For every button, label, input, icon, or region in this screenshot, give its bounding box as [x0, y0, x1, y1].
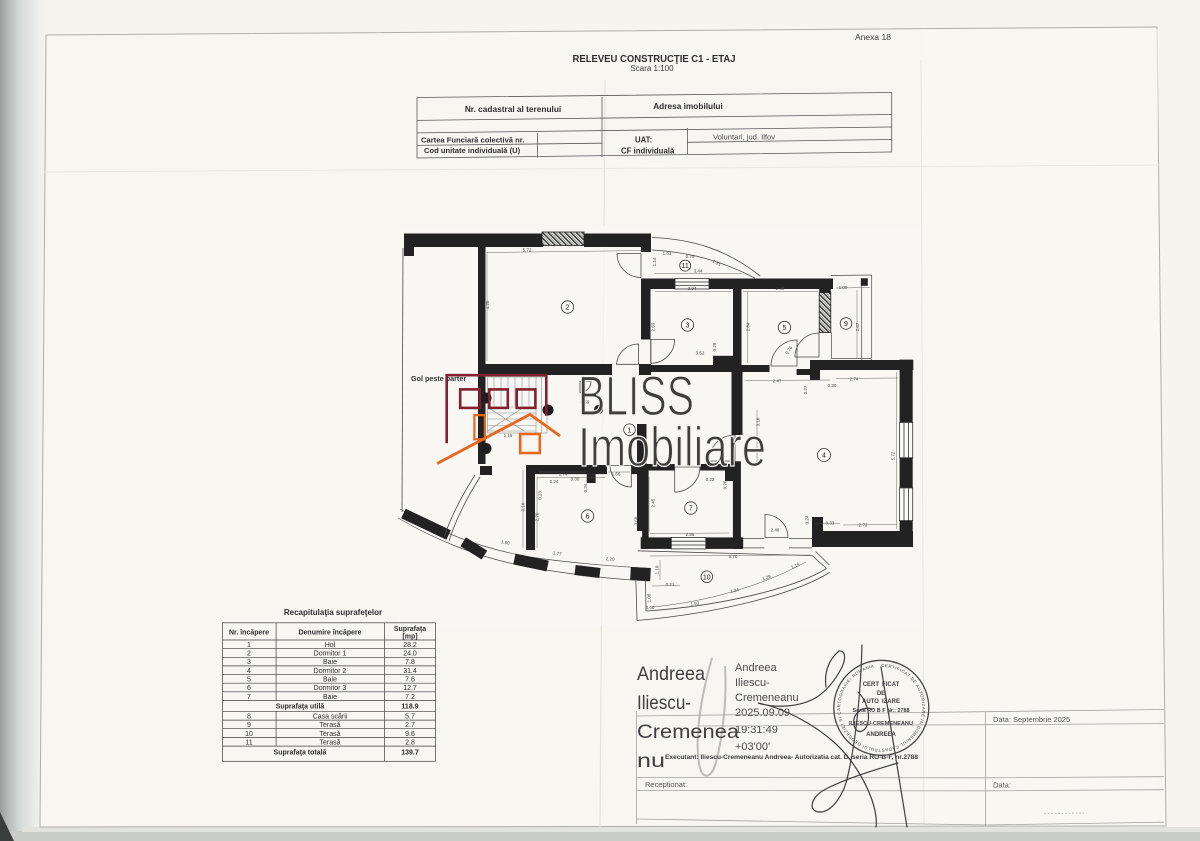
svg-text:Terasă: Terasă	[319, 731, 340, 738]
svg-text:AUTOIZARE: AUTOIZARE	[862, 699, 900, 705]
svg-text:2.69: 2.69	[776, 286, 785, 291]
svg-text:0.24: 0.24	[550, 479, 559, 484]
svg-text:3.44: 3.44	[694, 269, 703, 274]
svg-text:6: 6	[247, 685, 251, 692]
svg-text:2: 2	[247, 651, 251, 658]
svg-text:5: 5	[247, 677, 251, 684]
svg-text:0.27: 0.27	[803, 385, 808, 394]
svg-text:ILIESCU-CREMENEANU: ILIESCU-CREMENEANU	[849, 721, 913, 727]
svg-text:Iliescu-: Iliescu-	[637, 692, 691, 714]
svg-text:0.24: 0.24	[805, 515, 810, 524]
svg-text:4: 4	[247, 668, 251, 675]
svg-text:Seria RO B F Nr.: 2788: Seria RO B F Nr.: 2788	[853, 708, 910, 714]
svg-text:28.2: 28.2	[403, 642, 417, 649]
svg-text:CF individuală: CF individuală	[621, 147, 675, 156]
svg-text:0.33: 0.33	[826, 521, 835, 526]
svg-text:Dormitor 3: Dormitor 3	[314, 685, 347, 692]
svg-text:1.14: 1.14	[652, 257, 657, 266]
svg-text:9: 9	[844, 321, 848, 328]
svg-text:9.6: 9.6	[405, 731, 415, 738]
svg-text:24.0: 24.0	[403, 651, 417, 658]
svg-text:Terasă: Terasă	[319, 739, 340, 746]
svg-text:4.20: 4.20	[485, 300, 490, 309]
svg-text:Terasă: Terasă	[319, 722, 340, 729]
svg-text:1.00: 1.00	[839, 285, 848, 290]
svg-text:7.8: 7.8	[405, 659, 415, 666]
svg-text:2.48: 2.48	[771, 528, 780, 533]
svg-text:8: 8	[247, 713, 251, 720]
svg-text:Dormitor 1: Dormitor 1	[314, 651, 347, 658]
svg-text:DE: DE	[877, 691, 885, 697]
svg-text:1.74: 1.74	[559, 472, 568, 477]
svg-text:7.6: 7.6	[405, 677, 415, 684]
svg-text:1.01: 1.01	[663, 251, 672, 256]
svg-text:Casa scării: Casa scării	[313, 713, 348, 720]
svg-text:Nr. cadastral al terenului: Nr. cadastral al terenului	[465, 104, 561, 114]
svg-text:1.10: 1.10	[655, 565, 660, 574]
svg-text:5.72: 5.72	[891, 451, 896, 460]
svg-text:Baie: Baie	[323, 659, 337, 666]
svg-text:UAT:: UAT:	[635, 136, 652, 145]
svg-text:0.34: 0.34	[583, 483, 588, 492]
svg-text:nu: nu	[637, 750, 665, 772]
svg-text:Cremeneanu: Cremeneanu	[735, 692, 799, 704]
svg-text:11: 11	[682, 263, 689, 270]
svg-text:2.20: 2.20	[606, 556, 616, 562]
svg-text:6: 6	[586, 514, 590, 521]
svg-text:10: 10	[245, 731, 253, 738]
svg-text:2.45: 2.45	[651, 498, 656, 507]
svg-text:2: 2	[566, 305, 570, 312]
svg-text:+03'00': +03'00'	[735, 741, 770, 753]
svg-text:10: 10	[703, 574, 711, 581]
svg-text:Recapitulaţia suprafeţelor: Recapitulaţia suprafeţelor	[284, 608, 382, 617]
svg-text:7: 7	[247, 694, 251, 701]
svg-text:0.23: 0.23	[538, 491, 543, 500]
svg-text:Cremenea: Cremenea	[637, 721, 739, 743]
svg-text:Suprafaţa: Suprafaţa	[394, 626, 426, 633]
svg-text:3.10: 3.10	[521, 502, 526, 511]
svg-text:Nr. încăpere: Nr. încăpere	[229, 630, 269, 637]
svg-text:CERTFICAT: CERTFICAT	[863, 682, 900, 688]
svg-text:0.29: 0.29	[712, 342, 717, 351]
svg-text:Hol: Hol	[325, 642, 336, 649]
svg-text:1.08: 1.08	[647, 593, 652, 602]
svg-text:0.30: 0.30	[828, 383, 837, 388]
svg-text:Data: Septembrie 2025: Data: Septembrie 2025	[993, 715, 1070, 724]
svg-text:Anexa 18: Anexa 18	[855, 32, 891, 42]
svg-text:3: 3	[686, 323, 690, 330]
svg-text:2.94: 2.94	[688, 286, 697, 291]
svg-text:3.52: 3.52	[696, 351, 705, 356]
svg-text:7.2: 7.2	[405, 694, 415, 701]
svg-text:0.60: 0.60	[646, 605, 655, 610]
svg-text:2.84: 2.84	[746, 322, 751, 331]
svg-text:Andreea: Andreea	[735, 662, 777, 674]
svg-text:1: 1	[247, 642, 251, 649]
svg-text:4: 4	[822, 453, 826, 460]
svg-text:Denumire încăpere: Denumire încăpere	[298, 630, 361, 637]
svg-text:5: 5	[783, 325, 787, 332]
svg-text:3: 3	[247, 659, 251, 666]
svg-text:118.9: 118.9	[401, 704, 418, 711]
svg-text:31.4: 31.4	[403, 668, 417, 675]
svg-text:Cod unitate individuală (U): Cod unitate individuală (U)	[424, 146, 521, 155]
svg-text:Adresa imobilului: Adresa imobilului	[653, 101, 723, 111]
svg-text:Andreea: Andreea	[637, 663, 705, 685]
svg-text:0.79: 0.79	[686, 254, 695, 259]
svg-text:2.76: 2.76	[535, 512, 540, 521]
svg-text:2.7: 2.7	[405, 722, 415, 729]
svg-text:2025.09.09: 2025.09.09	[735, 707, 790, 719]
svg-text:2.74: 2.74	[850, 377, 859, 382]
svg-text:Cartea Funciară colectivă nr.: Cartea Funciară colectivă nr.	[421, 136, 524, 145]
svg-text:Voluntari, jud. Ilfov: Voluntari, jud. Ilfov	[713, 133, 775, 142]
svg-text:5.72: 5.72	[523, 248, 532, 253]
svg-text:11: 11	[245, 739, 252, 746]
svg-text:Imobiliare: Imobiliare	[578, 415, 766, 478]
svg-text:0.26: 0.26	[723, 480, 728, 489]
svg-text:3.68: 3.68	[634, 516, 639, 525]
svg-text:9: 9	[247, 722, 251, 729]
svg-text:2.72: 2.72	[859, 523, 868, 528]
svg-text:[mp]: [mp]	[402, 634, 417, 641]
svg-text:12.7: 12.7	[403, 685, 417, 692]
svg-text:7: 7	[689, 506, 693, 513]
svg-text:Data:: Data:	[993, 781, 1011, 790]
svg-text:2.86: 2.86	[686, 532, 695, 537]
svg-text:Dormitor 2: Dormitor 2	[314, 668, 347, 675]
svg-text:1.15: 1.15	[504, 433, 513, 438]
svg-text:Suprafaţa utilă: Suprafaţa utilă	[276, 704, 325, 711]
svg-text:Iliescu-: Iliescu-	[735, 677, 770, 689]
svg-text:Scara 1:100: Scara 1:100	[630, 64, 674, 73]
svg-text:2.69: 2.69	[651, 322, 656, 331]
svg-text:139.7: 139.7	[401, 750, 419, 757]
svg-text:5.7: 5.7	[405, 713, 415, 720]
svg-text:Receptionat:: Receptionat:	[645, 780, 687, 789]
svg-text:5.70: 5.70	[729, 554, 738, 559]
svg-text:Suprafaţa totală: Suprafaţa totală	[274, 750, 327, 757]
svg-text:2.47: 2.47	[773, 379, 782, 384]
svg-text:2.8: 2.8	[405, 739, 415, 746]
svg-text:2.67: 2.67	[855, 322, 860, 331]
svg-text:Baie: Baie	[323, 677, 337, 684]
svg-text:Baie: Baie	[323, 694, 337, 701]
svg-text:0.21: 0.21	[666, 582, 675, 587]
